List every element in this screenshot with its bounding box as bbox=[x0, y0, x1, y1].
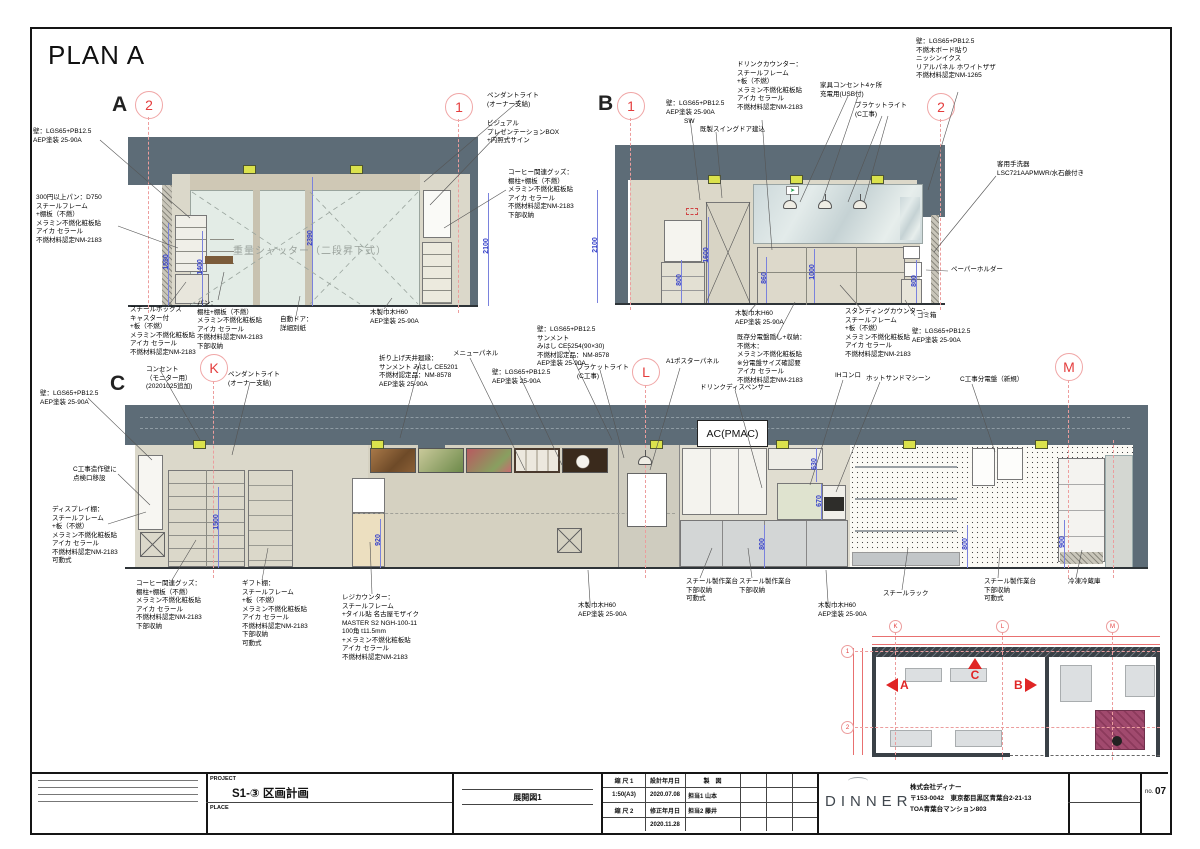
kitchen-cabinet bbox=[682, 448, 767, 515]
annotation: ブラケットライト (C工事) bbox=[577, 364, 629, 381]
company-address: 〒153-0042 東京都目黒区青葉台2-21-13 bbox=[910, 792, 1031, 802]
sheet-no-label: no. bbox=[1145, 789, 1153, 795]
annotation: ホットサンドマシーン bbox=[866, 375, 931, 384]
ceiling-light-icon bbox=[350, 165, 363, 174]
handwash-marble bbox=[900, 197, 920, 240]
titleblock-divider bbox=[452, 772, 454, 833]
ceiling-light-icon bbox=[650, 440, 663, 449]
annotation: ビジュアル プレゼンテーションBOX +内照式サイン bbox=[487, 120, 559, 146]
dimension: 1550 bbox=[163, 242, 173, 282]
grid-line bbox=[630, 118, 631, 310]
keyplan-arrow-c: C bbox=[968, 658, 982, 682]
revision-line bbox=[38, 780, 198, 781]
wood-counter bbox=[205, 256, 233, 264]
annotation: スチール製作業台 下部収納 bbox=[739, 578, 791, 595]
dimension: 1000 bbox=[809, 252, 819, 292]
coffee-goods-shelf bbox=[422, 242, 452, 304]
annotation: 壁：LGS65+PB12.5 サンメント みはし CE5254(90×30) 不… bbox=[537, 326, 609, 369]
logo-mark-icon bbox=[848, 777, 868, 785]
annotation: 壁：LGS65+PB12.5 AEP塗装 25-90A bbox=[492, 369, 550, 386]
ceiling-light-icon bbox=[776, 440, 789, 449]
annotation: SW bbox=[684, 118, 694, 127]
grid-marker-l: L bbox=[632, 358, 660, 386]
annotation: ドリンクディスペンサー bbox=[700, 384, 771, 393]
counter-panel-line bbox=[806, 247, 807, 305]
grid-marker-k: K bbox=[200, 354, 228, 382]
grid-line bbox=[940, 119, 941, 310]
revision-line bbox=[38, 787, 198, 788]
keyplan-grid-marker-k: K bbox=[889, 620, 902, 633]
design-date: 2020.07.08 bbox=[645, 788, 685, 802]
titleblock-line bbox=[1068, 802, 1140, 803]
page-title: PLAN A bbox=[48, 40, 145, 71]
annotation: 壁：LGS65+PB12.5 AEP塗装 25-90A bbox=[666, 100, 724, 117]
gift-shelf bbox=[248, 470, 293, 567]
ac-unit-label: AC(PMAC) bbox=[697, 420, 768, 447]
shelf-post bbox=[206, 470, 207, 567]
grid-line bbox=[148, 117, 149, 313]
design-date-label: 設計年月日 bbox=[645, 773, 685, 787]
dimension: 800 bbox=[759, 524, 769, 564]
standing-counter bbox=[757, 247, 905, 305]
scale1-label: 縮 尺 1 bbox=[603, 773, 645, 787]
arrow-right-icon bbox=[1025, 678, 1037, 692]
annotation: 木製巾木H60 AEP塗装 25-90A bbox=[578, 602, 627, 619]
annotation: スタンディングカウンター： スチールフレーム +板（不燃） メラミン不燃化粧板貼… bbox=[845, 308, 929, 359]
counter-panel-line bbox=[757, 272, 905, 273]
company-building: TOA青葉台マンション803 bbox=[910, 803, 986, 813]
keyplan-fixture bbox=[905, 668, 942, 682]
keyplan-dim-line bbox=[862, 648, 863, 755]
keyplan-dim-line bbox=[872, 644, 1160, 645]
floor-line bbox=[615, 303, 945, 305]
dimension: 800 bbox=[676, 260, 686, 300]
drafting-label: 製 図 bbox=[685, 773, 740, 787]
titleblock-top-border bbox=[30, 772, 1168, 774]
dimension: 670 bbox=[816, 481, 826, 521]
coffered-ceiling-line bbox=[140, 428, 1130, 429]
sheet-no: 07 bbox=[1155, 786, 1166, 797]
annotation: スチール製作業台 下部収納 可動式 bbox=[984, 578, 1036, 604]
elevation-b-ceiling-band bbox=[615, 145, 945, 180]
drawing-title: 展開図1 bbox=[462, 792, 593, 803]
titleblock-divider bbox=[817, 772, 819, 833]
arrow-left-icon bbox=[886, 678, 898, 692]
keyplan-arrow-a: A bbox=[886, 678, 909, 692]
company-name: 株式会社ディナー bbox=[910, 781, 962, 791]
elevation-a-transom bbox=[190, 174, 420, 190]
annotation: C工事分電盤（新規） bbox=[960, 376, 1023, 385]
scale2-label: 縮 尺 2 bbox=[603, 803, 645, 817]
annotation: レジカウンター： スチールフレーム +タイル貼 名古屋モザイク MASTER S… bbox=[342, 594, 419, 663]
elevation-a-ceiling-band bbox=[128, 137, 478, 174]
floor-line bbox=[125, 567, 1148, 569]
grid-marker-m: M bbox=[1055, 353, 1083, 381]
dimension: 900 bbox=[1059, 522, 1069, 562]
keyplan-grid-line bbox=[850, 651, 1160, 652]
annotation: ペンダントライト (オーナー支給) bbox=[228, 371, 280, 388]
table-line bbox=[603, 817, 817, 818]
dimension: 1500 bbox=[213, 502, 223, 542]
annotation: ディスプレイ棚： スチールフレーム +板（不燃） メラミン不燃化粧板貼 アイカ … bbox=[52, 506, 118, 566]
keyplan-arrow-b-label: B bbox=[1014, 678, 1023, 692]
elevation-a-band-corner bbox=[128, 174, 172, 185]
annotation: スチールボックス キャスター付 +板（不燃） メラミン不燃化粧板貼 アイカ セラ… bbox=[130, 306, 196, 357]
elevation-b-wall-section bbox=[931, 215, 939, 305]
keyplan-grid-marker-l: L bbox=[996, 620, 1009, 633]
staff1: 担当1 山本 bbox=[685, 788, 743, 802]
dimension: 2390 bbox=[307, 218, 317, 258]
ceiling-light-icon bbox=[371, 440, 384, 449]
pendant-light-icon bbox=[638, 456, 652, 465]
elevation-c-ceiling-band bbox=[125, 405, 1148, 445]
annotation: 300円以上パン：D750 スチールフレーム +棚板（不燃） メラミン不燃化粧板… bbox=[36, 194, 102, 245]
elevation-c-label: C bbox=[110, 372, 125, 396]
annotation: メニューパネル bbox=[453, 350, 498, 359]
crossed-unit bbox=[557, 528, 582, 553]
annotation: 客用手洗器 LSC721AAPMWR/水石鹸付き bbox=[997, 161, 1084, 178]
annotation: パン： 棚柱+棚板（不燃） メラミン不燃化粧板貼 アイカ セラール 不燃材料認定… bbox=[197, 300, 263, 351]
distribution-board bbox=[972, 448, 995, 486]
grid-line bbox=[213, 381, 214, 578]
pendant-light-icon bbox=[783, 200, 797, 209]
dimension: 1600 bbox=[703, 235, 713, 275]
menu-photo-panel bbox=[514, 448, 560, 473]
elevation-a-right-column bbox=[470, 174, 478, 306]
menu-photo-panel bbox=[370, 448, 416, 473]
crossed-unit bbox=[140, 532, 165, 557]
access-panel bbox=[138, 455, 163, 530]
project-name: S1-③ 区画計画 bbox=[232, 785, 309, 801]
annotation: 自動ドア： 詳細別紙 bbox=[280, 316, 313, 333]
rack-shelf-line bbox=[855, 530, 957, 532]
dimension: 2100 bbox=[592, 225, 602, 265]
ceiling-light-icon bbox=[1035, 440, 1048, 449]
keyplan-arrow-c-label: C bbox=[971, 669, 980, 682]
keyplan-arrow-a-label: A bbox=[900, 678, 909, 692]
annotation: A1ポスターパネル bbox=[666, 358, 719, 367]
grid-marker-b-left: 1 bbox=[617, 92, 645, 120]
annotation: 既製スイングドア建込 bbox=[700, 126, 765, 135]
register-upper bbox=[352, 478, 385, 513]
keyplan-grid-marker-1: 1 bbox=[841, 645, 854, 658]
keyplan-bottom-dashed bbox=[1010, 755, 1160, 756]
menu-photo-panel bbox=[466, 448, 512, 473]
marble-wall-panel bbox=[753, 184, 923, 244]
grid-line bbox=[645, 385, 646, 578]
annotation: ペーパーホルダー bbox=[951, 266, 1003, 275]
drawing-sheet: PLAN A A 2 1 重量シャッター（二段昇下式） 壁：LGS65+PB12… bbox=[0, 0, 1200, 849]
keyplan-grid-line bbox=[850, 727, 1160, 728]
revise-date: 2020.11.28 bbox=[645, 818, 685, 831]
staff2: 担当2 藤井 bbox=[685, 803, 743, 817]
rack-shelf-line bbox=[855, 466, 957, 468]
annotation: ギフト棚： スチールフレーム +板（不燃） メラミン不燃化粧板貼 アイカ セラー… bbox=[242, 580, 308, 649]
annotation: C工事造作壁に 点検口移設 bbox=[73, 466, 117, 483]
dimension: 800 bbox=[911, 261, 921, 301]
dimension: 800 bbox=[962, 524, 972, 564]
keyplan-left-wall bbox=[872, 647, 876, 757]
rack-base bbox=[852, 552, 960, 566]
revise-date-label: 修正年月日 bbox=[645, 803, 685, 817]
menu-photo-panel bbox=[418, 448, 464, 473]
dimension: 1400 bbox=[197, 247, 207, 287]
keyplan-dim-line bbox=[872, 636, 1160, 637]
keyplan-fixture bbox=[1125, 665, 1155, 697]
annotation: 壁：LGS65+PB12.5 AEP塗装 25-90A bbox=[40, 390, 98, 407]
ceiling-light-icon bbox=[903, 440, 916, 449]
dimension: 630 bbox=[811, 444, 821, 484]
machine-door bbox=[824, 497, 844, 511]
back-door bbox=[1105, 455, 1133, 568]
rack-shelf-line bbox=[855, 498, 957, 500]
annotation: コンセント （モニター用） (20201025追加) bbox=[146, 366, 192, 392]
annotation: 木製巾木H60 AEP塗装 25-90A bbox=[370, 309, 419, 326]
annotation: IHコンロ bbox=[835, 372, 861, 381]
elevation-a-label: A bbox=[112, 93, 127, 117]
a1-poster bbox=[627, 473, 667, 527]
dimension: 2100 bbox=[483, 226, 493, 266]
keyplan-right-wall bbox=[1156, 647, 1160, 757]
ceiling-light-icon bbox=[871, 175, 884, 184]
keyplan-fixture bbox=[890, 730, 932, 747]
handwash-basin bbox=[903, 246, 920, 259]
keyplan-column-icon bbox=[1112, 736, 1122, 746]
revision-line bbox=[38, 794, 198, 795]
project-label: PROJECT bbox=[210, 776, 236, 782]
ceiling-light-icon bbox=[708, 175, 721, 184]
keyplan-arrow-b: B bbox=[1014, 678, 1037, 692]
coffee-machine bbox=[664, 220, 702, 262]
coffered-ceiling-line bbox=[140, 417, 1130, 418]
presentation-box bbox=[423, 190, 451, 238]
annotation: ドリンクカウンター： スチールフレーム +板（不燃） メラミン不燃化粧板貼 アイ… bbox=[737, 61, 803, 112]
pendant-light-icon bbox=[818, 200, 832, 209]
titleblock-divider bbox=[1140, 772, 1142, 833]
pendant-light-icon bbox=[853, 200, 867, 209]
keyplan-grid-marker-m: M bbox=[1106, 620, 1119, 633]
outlet-marker-icon bbox=[686, 208, 698, 215]
elevation-b-label: B bbox=[598, 92, 613, 116]
grid-line bbox=[458, 119, 459, 313]
place-label: PLACE bbox=[210, 805, 229, 811]
titleblock-line bbox=[462, 789, 593, 790]
keyplan-fixture bbox=[955, 730, 1002, 747]
keyplan-bottom-wall bbox=[872, 753, 1010, 757]
exit-sign-icon: ➤ bbox=[786, 186, 799, 195]
keyplan-partition bbox=[1045, 657, 1049, 757]
grid-marker-b-right: 2 bbox=[927, 93, 955, 121]
annotation: 折り上げ天井廻縁： サンメント みはし CE5201 不燃材認定品：NM-857… bbox=[379, 355, 458, 389]
scale1-value: 1:50(A3) bbox=[603, 788, 645, 802]
revision-line bbox=[38, 801, 198, 802]
annotation: 冷凍冷蔵庫 bbox=[1068, 578, 1101, 587]
annotation: スチール製作業台 下部収納 可動式 bbox=[686, 578, 738, 604]
counter-panel-line bbox=[856, 247, 857, 305]
menu-photo-panel bbox=[562, 448, 608, 473]
annotation: 木製巾木H60 AEP塗装 25-90A bbox=[735, 310, 784, 327]
annotation: 既存分電盤隠し+収納： 不燃木： メラミン不燃化粧板貼 ※分電盤サイズ確認要 ア… bbox=[737, 334, 806, 385]
ceiling-light-icon bbox=[193, 440, 206, 449]
dimension: 860 bbox=[761, 258, 771, 298]
ceiling-light-icon bbox=[790, 175, 803, 184]
grid-line bbox=[1113, 440, 1114, 578]
annotation: コーヒー関連グッズ： 棚柱+棚板（不燃） メラミン不燃化粧板貼 アイカ セラール… bbox=[136, 580, 202, 631]
grid-marker-a-right: 1 bbox=[445, 93, 473, 121]
annotation: 木製巾木H60 AEP塗装 25-90A bbox=[818, 602, 867, 619]
keyplan-grid-marker-2: 2 bbox=[841, 721, 854, 734]
elevation-b-left-column bbox=[615, 180, 628, 305]
annotation: コーヒー関連グッズ： 棚柱+棚板（不燃） メラミン不燃化粧板貼 アイカ セラール… bbox=[508, 169, 574, 220]
grid-marker-a-left: 2 bbox=[135, 91, 163, 119]
keyplan-fixture bbox=[1060, 665, 1092, 702]
titleblock-line bbox=[462, 804, 593, 805]
annotation: ペンダントライト (オーナー支給) bbox=[487, 92, 539, 109]
keyplan-dim-line bbox=[853, 648, 854, 755]
dimension: 920 bbox=[375, 520, 385, 560]
company-logo: DINNER bbox=[825, 793, 913, 810]
titleblock-line bbox=[206, 802, 452, 803]
annotation: 壁：LGS65+PB12.5 AEP塗装 25-90A bbox=[33, 128, 91, 145]
distribution-board bbox=[997, 448, 1023, 480]
ceiling-light-icon bbox=[243, 165, 256, 174]
keyplan-top-wall bbox=[872, 647, 1160, 657]
annotation: ブラケットライト (C工事) bbox=[855, 102, 907, 119]
annotation: 家具コンセント4ヶ所 充電用(USB付) bbox=[820, 82, 882, 99]
annotation: スチールラック bbox=[883, 590, 929, 599]
elevation-c-right-column bbox=[1133, 445, 1148, 568]
annotation: 壁：LGS65+PB12.5 不燃木ボード貼り ニッシンイクス リアルパネル ホ… bbox=[916, 38, 996, 81]
